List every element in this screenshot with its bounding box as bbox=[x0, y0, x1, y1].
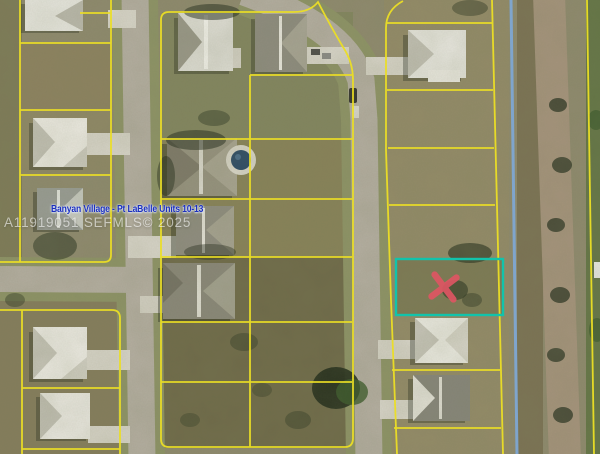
watermark-id: A11919051 SEFMLS© 2025 bbox=[4, 215, 191, 230]
watermark-title: Banyan Village - Pt LaBelle Units 10-13 bbox=[51, 203, 203, 215]
aerial-map: Banyan Village - Pt LaBelle Units 10-13 … bbox=[0, 0, 600, 454]
